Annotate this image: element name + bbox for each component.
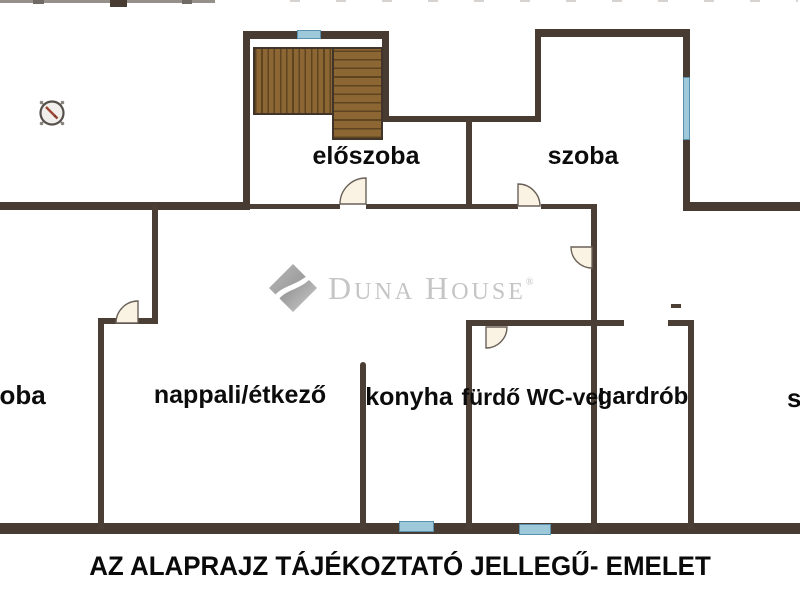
room-label-nappali: nappali/étkező: [154, 381, 326, 410]
door-swing-arc-center: [571, 247, 592, 268]
room-label-szoba-right: szoba: [787, 383, 800, 414]
door-swing-arc-szoba-top: [518, 184, 540, 206]
room-label-szoba-left: szoba: [0, 380, 46, 411]
room-label-gardrob: gardrób: [598, 383, 689, 411]
compass-icon: [40, 101, 65, 126]
door-swing-arc-furdo: [486, 327, 507, 348]
room-label-konyha: konyha: [365, 383, 453, 412]
room-label-eloszoba: előszoba: [313, 142, 420, 171]
door-swing-arc-left-room: [116, 301, 138, 323]
room-label-furdo: fürdő WC-vel: [461, 384, 604, 411]
room-label-szoba-top: szoba: [548, 142, 619, 171]
floor-plan: DUNAHOUSE®: [0, 0, 800, 600]
door-and-symbol-layer: [0, 0, 800, 600]
plan-caption: AZ ALAPRAJZ TÁJÉKOZTATÓ JELLEGŰ- EMELET: [16, 551, 784, 582]
door-swing-arc-eloszoba: [340, 178, 366, 204]
